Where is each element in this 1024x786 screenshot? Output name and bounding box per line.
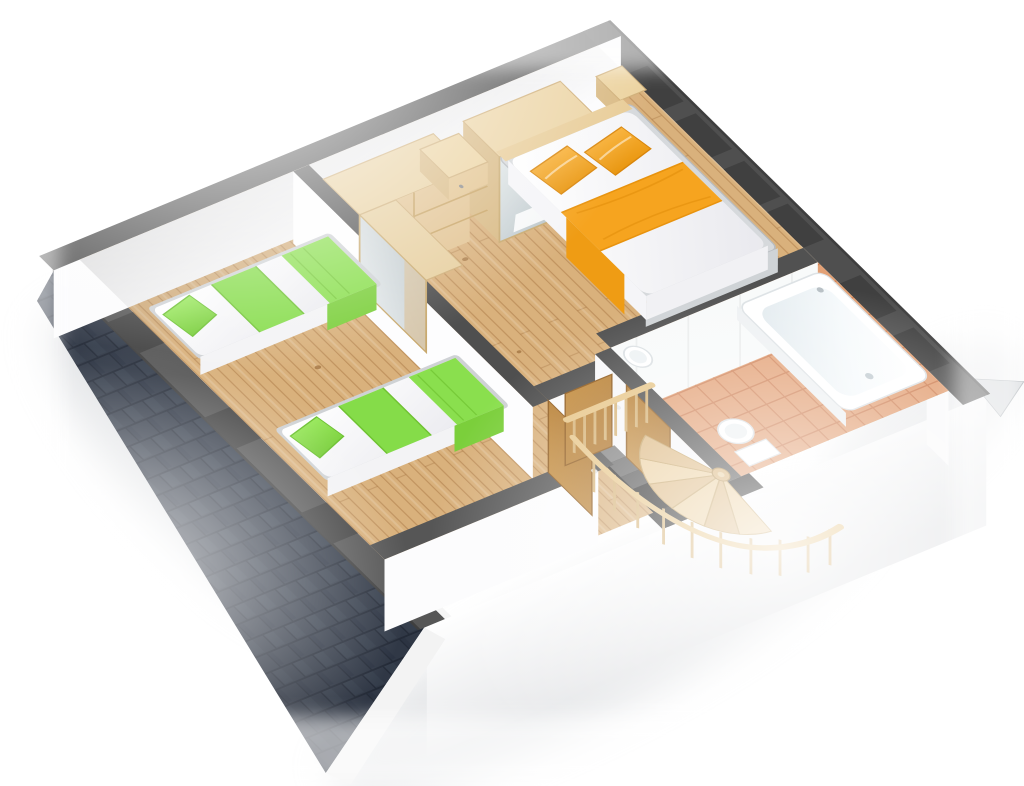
light-glow-overlays bbox=[0, 0, 1024, 786]
attic-floorplan-render bbox=[0, 0, 1024, 786]
floorplan-canvas bbox=[0, 0, 1024, 786]
